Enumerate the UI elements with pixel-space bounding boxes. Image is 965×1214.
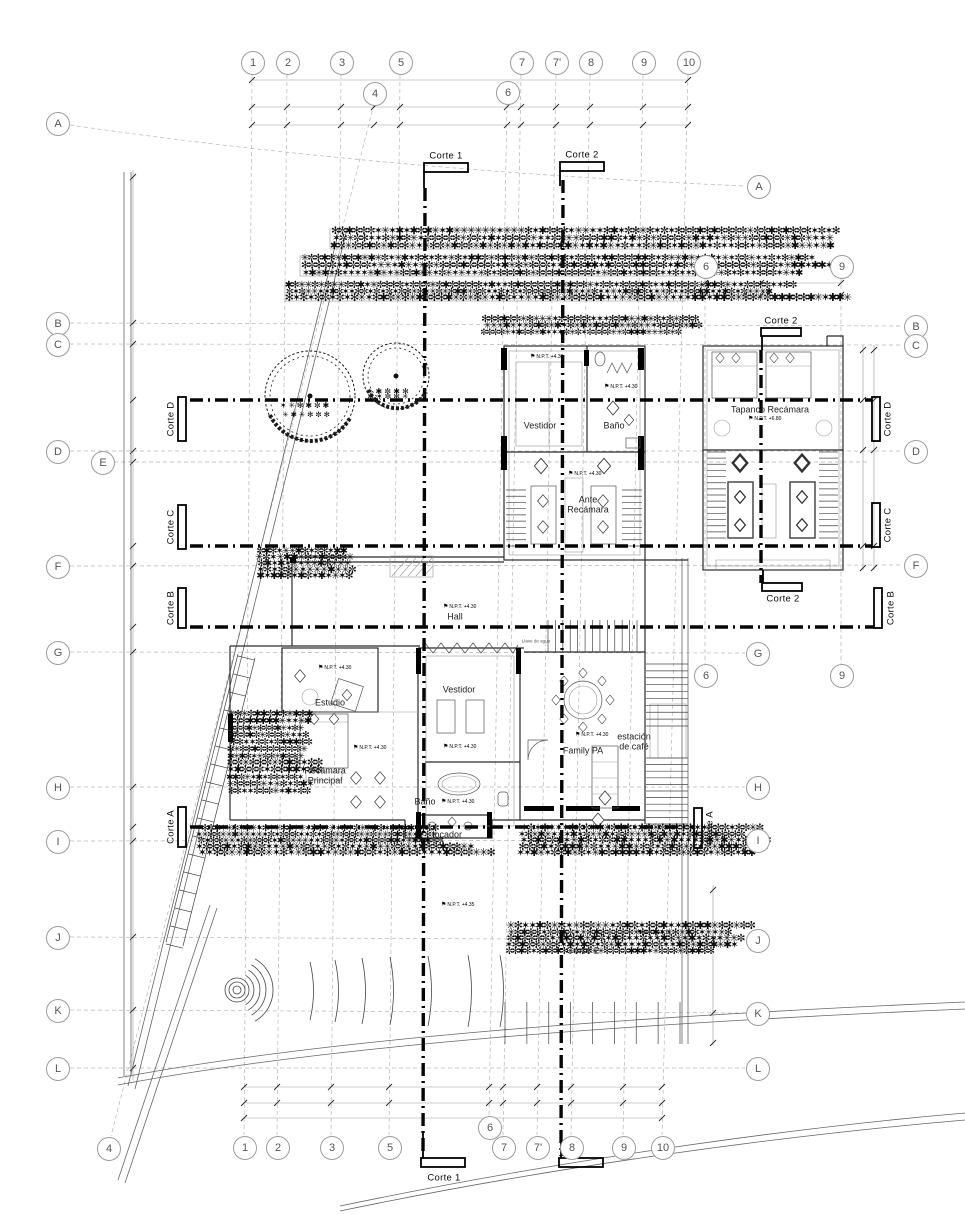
level-flag-icon: ⚑ xyxy=(353,745,358,751)
room-estudio: Estudio xyxy=(315,698,345,708)
npt-marker-garden: ⚑N.P.T. +5.15 xyxy=(637,929,670,936)
room-tocador: tocador xyxy=(432,830,462,840)
corte-c-label-left: Corte C xyxy=(166,510,176,545)
grid-bubble-right-F: F xyxy=(904,554,928,578)
svg-text:✱✶✱✱✻✶✱✼✶✱✶✳✶✻: ✱✶✱✱✻✶✱✼✶✱✶✳✶✻ xyxy=(256,571,352,582)
level-flag-icon: ⚑ xyxy=(604,384,609,390)
room-tapanco-recamara: Tapanco Recámara xyxy=(731,405,809,415)
npt-marker-bano-top: ⚑N.P.T. +4.30 xyxy=(604,383,637,390)
note-llave-de-agua: Llave de agua xyxy=(522,639,550,644)
grid-bubble-tapanco-9: 9 xyxy=(830,255,854,279)
room-estacion-line2: de café xyxy=(617,742,651,752)
grid-bubble-right-G: G xyxy=(746,642,770,666)
level-flag-icon: ⚑ xyxy=(575,732,580,738)
room-bano-top: Baño xyxy=(603,421,624,431)
corte-b-label-right: Corte B xyxy=(886,591,896,625)
corte-1-label-bottom: Corte 1 xyxy=(427,1173,460,1183)
grid-bubble-bottom-8: 8 xyxy=(560,1136,584,1160)
svg-text:✶✶✱✳✶✼✻✱✳✻✶✳✱✼✱✱✱✱✶✱✶✼✻✼✳✼✱✼✶✳: ✶✶✱✳✶✼✻✱✳✻✶✳✱✼✱✱✱✱✶✱✶✼✻✼✳✼✱✼✶✳✻✻✶✱✱ xyxy=(516,848,755,859)
grid-bubble-bottom-3: 3 xyxy=(320,1136,344,1160)
svg-text:✶✶✻✼✳✳✱✼✼✳✶✻✶✳✼✱✱✶✳✼✳✱✼✼✶✻✳✱✻✻: ✶✶✻✼✳✳✱✼✼✳✶✻✶✳✼✱✱✶✳✼✳✱✼✼✶✻✳✱✻✻✶✶✶✱✻✼✼✳✳✻ xyxy=(198,847,496,859)
grid-bubble-top-7': 7' xyxy=(545,51,569,75)
grid-bubble-left-A: A xyxy=(46,112,70,136)
grid-bubble-tapanco-6: 6 xyxy=(694,664,718,688)
grid-bubble-bottom-7': 7' xyxy=(526,1136,550,1160)
grid-bubble-right-K: K xyxy=(746,1002,770,1026)
grid-bubble-tapanco-9: 9 xyxy=(830,664,854,688)
grid-bubble-tapanco-6: 6 xyxy=(694,255,718,279)
npt-marker-ante: ⚑N.P.T. +4.30 xyxy=(568,470,601,477)
svg-text:✼✼✼✻✳✶✱✼✻✳✱✶✶✶✼✳✼✶✼✼✻✼✳✳✼✱✱✱✳✳: ✼✼✼✻✳✶✱✼✻✳✱✶✶✶✼✳✼✶✼✼✻✼✳✳✼✱✱✱✳✳✳✼✳✼ xyxy=(480,327,682,337)
room-bano-lower: Baño xyxy=(414,797,435,807)
grid-bubble-right-I: I xyxy=(746,829,770,853)
svg-text:✼✻✱✻✶✻✱✻✱✻✳✼✼✼✳✳✻✼✻✼✱✱✱✶✳✼✼✻✳✼: ✼✻✱✻✶✻✱✻✱✻✳✼✼✼✳✳✻✼✻✼✱✱✱✶✳✼✼✻✳✼✱✱✻✻ xyxy=(505,946,714,957)
grid-bubble-left-H: H xyxy=(46,776,70,800)
npt-marker-terrace: ⚑N.P.T. +4.35 xyxy=(441,901,474,908)
room-recamara-line2: Principal xyxy=(304,776,346,786)
level-flag-icon: ⚑ xyxy=(443,604,448,610)
svg-text:✳✱✳✻✼✻: ✳✱✳✻✼✻ xyxy=(282,410,331,419)
plan-drawing: ✻✼✱✻✼✼✶✳✶✱✶✱✼✱✳✶✱✳✳✳✳✳✳✶✳✳✳✻✶✱✼✻✻✶✳✳✶✶✻✱… xyxy=(0,0,965,1214)
corte-a-label-right: Corte A xyxy=(705,811,715,845)
grid-bubble-top-10: 10 xyxy=(677,51,701,75)
level-flag-icon: ⚑ xyxy=(443,744,448,750)
grid-bubble-bottom-7: 7 xyxy=(492,1136,516,1160)
grid-bubble-left-G: G xyxy=(46,641,70,665)
room-ante-recamara: Ante Recámara xyxy=(567,496,609,515)
npt-marker-family: ⚑N.P.T. +4.30 xyxy=(575,731,608,738)
grid-bubble-right-D: D xyxy=(904,440,928,464)
corte-c-label-right: Corte C xyxy=(883,508,893,543)
corte-b-label-left: Corte B xyxy=(166,591,176,625)
grid-bubble-right-L: L xyxy=(746,1057,770,1081)
corte-2-label-tapanco-bottom: Corte 2 xyxy=(766,594,799,604)
room-vestidor-top: Vestidor xyxy=(524,421,557,431)
level-flag-icon: ⚑ xyxy=(748,416,753,422)
corte-d-label-left: Corte D xyxy=(166,402,176,437)
grid-bubble-right-J: J xyxy=(746,929,770,953)
npt-marker-vestidor-center: ⚑N.P.T. +4.30 xyxy=(443,743,476,750)
grid-bubble-right-A: A xyxy=(747,175,771,199)
corte-2-label-mid: Corte 2 xyxy=(566,946,599,956)
grid-bubble-bottom-2: 2 xyxy=(266,1136,290,1160)
grid-bubble-left-I: I xyxy=(46,830,70,854)
grid-bubble-top-2: 2 xyxy=(276,51,300,75)
npt-marker-hall: ⚑N.P.T. +4.30 xyxy=(443,603,476,610)
svg-text:✶✱✳✱✶✻✶✶✶✶✳✱✳✶✳✻✼✱✳✳✶✼✳✶✳✶✶✳✻✶: ✶✱✳✱✶✻✶✶✶✶✳✱✳✶✳✻✼✱✳✳✶✼✳✶✳✶✶✳✻✶✻✻✼✱✻✳✻✼✻✱… xyxy=(302,268,803,279)
level-flag-icon: ⚑ xyxy=(530,354,535,360)
corte-2-label-top: Corte 2 xyxy=(565,150,598,160)
grid-bubble-top-4: 4 xyxy=(363,82,387,106)
grid-bubble-top-6: 6 xyxy=(496,81,520,105)
corte-1-label-top: Corte 1 xyxy=(429,151,462,161)
room-recamara-principal: Recámara Principal xyxy=(304,767,346,786)
floor-plan-sheet: ✻✼✱✻✼✼✶✳✶✱✶✱✼✱✳✶✱✳✳✳✳✳✳✶✳✳✳✻✶✱✼✻✻✶✳✳✶✶✻✱… xyxy=(0,0,965,1214)
grid-bubble-right-H: H xyxy=(746,776,770,800)
section-markers xyxy=(178,162,882,1167)
room-vestidor-center: Vestidor xyxy=(443,685,476,695)
grid-bubble-bottom-4: 4 xyxy=(97,1137,121,1161)
corte-2-label-tapanco-top: Corte 2 xyxy=(764,316,797,326)
grid-bubble-right-C: C xyxy=(904,334,928,358)
level-flag-icon: ⚑ xyxy=(441,799,446,805)
grid-bubble-top-8: 8 xyxy=(579,51,603,75)
grid-bubble-bottom-10: 10 xyxy=(651,1136,675,1160)
grid-bubble-bottom-9: 9 xyxy=(612,1136,636,1160)
npt-marker-bano-lower: ⚑N.P.T. +4.30 xyxy=(441,798,474,805)
grid-bubble-top-5: 5 xyxy=(389,51,413,75)
level-flag-icon: ⚑ xyxy=(568,471,573,477)
grid-bubble-top-7: 7 xyxy=(510,51,534,75)
grid-bubble-bottom-1: 1 xyxy=(233,1136,257,1160)
grid-bubble-left-F: F xyxy=(46,555,70,579)
npt-marker-estudio: ⚑N.P.T. +4.30 xyxy=(318,664,351,671)
corte-d-label-right: Corte D xyxy=(883,402,893,437)
room-ante-line2: Recámara xyxy=(567,505,609,515)
level-flag-icon: ⚑ xyxy=(637,930,642,936)
npt-marker-recamara: ⚑N.P.T. +4.30 xyxy=(353,744,386,751)
grid-bubble-left-J: J xyxy=(46,926,70,950)
grid-bubble-bottom-5: 5 xyxy=(378,1136,402,1160)
furniture xyxy=(300,352,832,830)
svg-text:✻✻✶✶✼✼✼✳✶✱✶✼✼: ✻✻✶✶✼✼✼✳✶✱✶✼✼ xyxy=(228,786,312,797)
grid-bubble-left-L: L xyxy=(46,1057,70,1081)
svg-text:✱✼✳✼✻✱✼✳✱✼✻✳✶✳✻✼✳✱✼✼✳✱✳✻✳✱✳✱✶✱: ✱✼✳✼✻✱✼✳✱✼✻✳✶✳✻✼✳✱✼✼✳✱✳✻✳✱✳✱✶✱✻✼✱✱✳✶✱✶✱✳… xyxy=(330,240,835,252)
room-hall: Hall xyxy=(447,612,463,622)
grid-bubble-top-3: 3 xyxy=(330,51,354,75)
svg-text:✻✶✻✶✼✼✶✼✶✻✳✶✻✱✼✳✻✳✱✼✻✻✱✳✼✳✻✳✶✱: ✻✶✻✶✼✼✶✼✶✻✳✶✻✱✼✳✻✳✱✼✻✻✱✳✼✳✻✳✶✱✼✶✶✳✶✱✻✳✳✼… xyxy=(285,292,852,304)
grid-bubble-top-9: 9 xyxy=(632,51,656,75)
room-family-pa: Family PA xyxy=(563,746,603,756)
npt-marker-tapanco: ⚑N.P.T. +6.80 xyxy=(748,415,781,422)
npt-marker-vestidor-top: ⚑N.P.T. +4.30 xyxy=(530,353,563,360)
room-estacion-cafe: estación de café xyxy=(617,733,651,752)
corte-a-label-left: Corte A xyxy=(166,810,176,844)
level-flag-icon: ⚑ xyxy=(318,665,323,671)
water-feature xyxy=(225,955,504,1027)
grid-bubble-left-C: C xyxy=(46,333,70,357)
grid-bubble-left-E: E xyxy=(91,451,115,475)
grid-bubble-top-1: 1 xyxy=(241,51,265,75)
level-flag-icon: ⚑ xyxy=(441,902,446,908)
grid-bubble-left-D: D xyxy=(46,440,70,464)
grid-bubble-left-K: K xyxy=(46,999,70,1023)
svg-text:✶✳✻✱✼✱: ✶✳✻✱✼✱ xyxy=(280,401,331,410)
